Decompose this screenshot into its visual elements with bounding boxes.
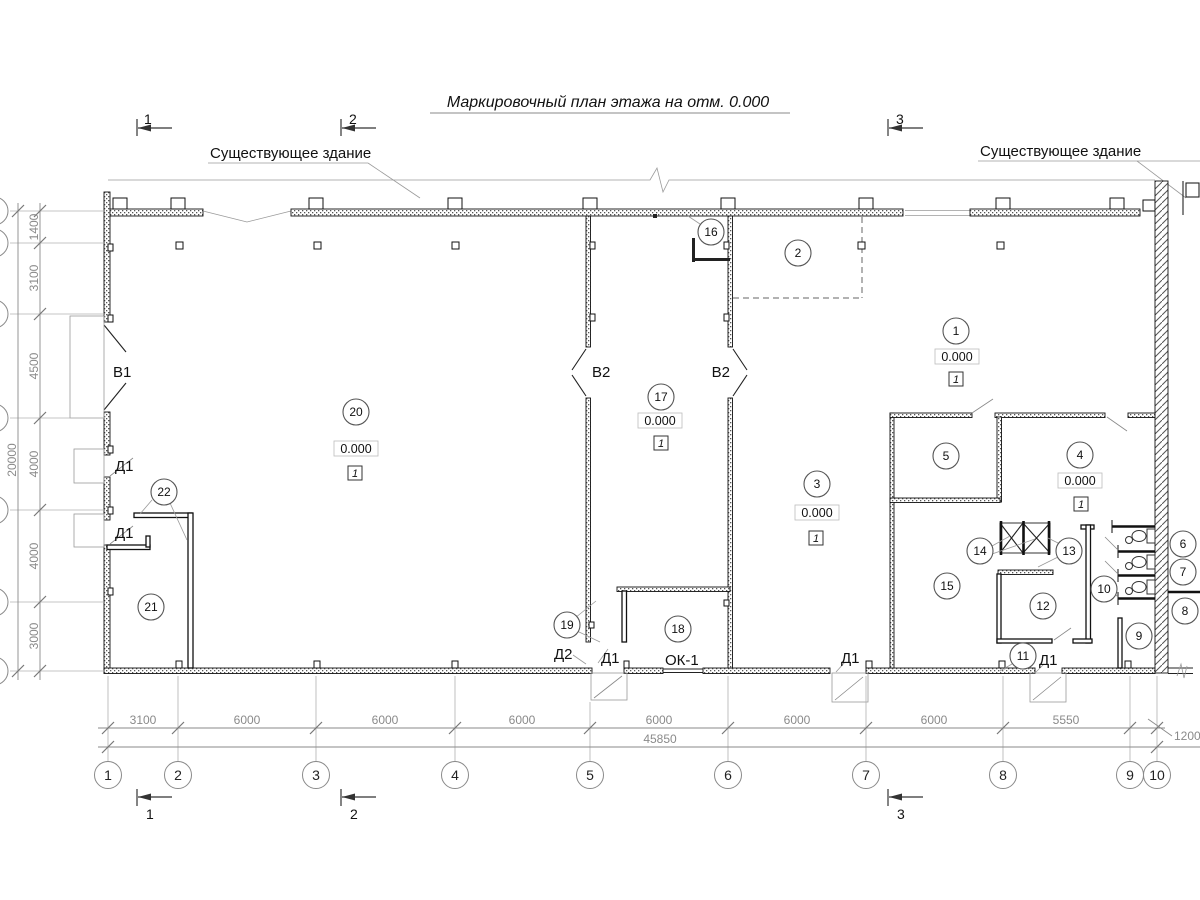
axis-bubble: 6 (715, 762, 742, 789)
toilet-icon (1126, 529, 1156, 544)
svg-text:0.000: 0.000 (340, 442, 371, 456)
dim-1-2: 3100 (130, 713, 157, 727)
room-badge: 12 (1030, 593, 1056, 619)
existing-building-outline (108, 168, 1155, 192)
gate-v2-left-symbol (572, 349, 586, 396)
svg-text:8: 8 (1182, 604, 1189, 618)
svg-text:4: 4 (451, 767, 459, 783)
svg-text:18: 18 (671, 622, 685, 636)
dim-8-9: 5550 (1053, 713, 1080, 727)
svg-text:3: 3 (814, 477, 821, 491)
axis-bubble: 9 (1117, 762, 1144, 789)
floor-plan-drawing: Маркировочный план этажа на отм. 0.000 С… (0, 0, 1200, 900)
axis-bubble: 10 (1144, 762, 1171, 789)
svg-text:1: 1 (813, 533, 819, 545)
room-badge: 15 (934, 573, 960, 599)
door-label-d1: Д1 (601, 650, 620, 667)
svg-text:9: 9 (1126, 767, 1134, 783)
svg-text:3: 3 (312, 767, 320, 783)
svg-text:9: 9 (1136, 629, 1143, 643)
dim-3-4: 6000 (372, 713, 399, 727)
svg-text:12: 12 (1036, 599, 1050, 613)
door-label-d1: Д1 (1039, 652, 1058, 669)
section-number: 3 (896, 111, 904, 127)
gate-label-v1: В1 (113, 364, 131, 381)
room-badge: 16 (698, 219, 724, 245)
room-badge: 2 (785, 240, 811, 266)
door-label-d1: Д1 (115, 525, 134, 542)
section-marker-3-bottom: 3 (888, 789, 923, 822)
existing-building-wall-right (1155, 181, 1199, 673)
svg-text:10: 10 (1149, 767, 1165, 783)
existing-building-label: Существующее здание (980, 143, 1141, 160)
svg-text:17: 17 (654, 390, 668, 404)
room-badge: 21 (138, 594, 164, 620)
svg-text:21: 21 (144, 600, 158, 614)
axis-bubble: 1 (95, 762, 122, 789)
svg-text:22: 22 (157, 485, 171, 499)
existing-building-label: Существующее здание (210, 145, 371, 162)
door-label-d1: Д1 (841, 650, 860, 667)
opening-labels: В1 В2 В2 Д1 Д1 Д2 Д1 ОК-1 Д1 Д1 (113, 364, 1058, 669)
svg-text:0.000: 0.000 (1064, 474, 1095, 488)
svg-text:1: 1 (352, 468, 358, 480)
dim-left-1: 1400 (27, 213, 41, 240)
section-number: 1 (146, 806, 154, 822)
room-badge: 9 (1126, 623, 1152, 649)
axis-bubble: 8 (990, 762, 1017, 789)
svg-text:14: 14 (973, 544, 987, 558)
section-marker-2-top: 2 (341, 111, 376, 136)
section-number: 1 (144, 111, 152, 127)
svg-text:11: 11 (1017, 649, 1030, 663)
svg-text:10: 10 (1097, 582, 1111, 596)
axis-bubble: 5 (577, 762, 604, 789)
section-marker-1-bottom: 1 (137, 789, 172, 822)
dim-left-3: 4500 (27, 352, 41, 379)
toilet-icon (1126, 580, 1156, 595)
svg-text:15: 15 (940, 579, 954, 593)
room-badge: 4 (1067, 442, 1093, 468)
axis-bubble: 3 (303, 762, 330, 789)
dimension-ticks (102, 722, 1163, 753)
svg-text:5: 5 (586, 767, 594, 783)
svg-text:16: 16 (704, 225, 718, 239)
gate-v2-right-symbol (733, 349, 747, 396)
svg-text:0.000: 0.000 (941, 350, 972, 364)
room-badge: 5 (933, 443, 959, 469)
door-label-d2: Д2 (554, 646, 573, 663)
svg-text:2: 2 (795, 246, 802, 260)
room-badge: 22 (151, 479, 177, 505)
entrance-porches (591, 673, 1066, 702)
section-number: 3 (897, 806, 905, 822)
room-badge: 11 (1010, 643, 1036, 669)
left-dimensions: 1400 3100 4500 4000 4000 3000 20000 (0, 197, 104, 685)
elevation-mark: 0.000 1 (795, 505, 839, 545)
room-badge: 20 (343, 399, 369, 425)
room-badge: 13 (1056, 538, 1082, 564)
svg-text:1: 1 (953, 374, 959, 386)
axis-bubble: 4 (442, 762, 469, 789)
svg-text:0.000: 0.000 (644, 414, 675, 428)
drawing-title: Маркировочный план этажа на отм. 0.000 (447, 94, 769, 111)
dim-total-height: 20000 (5, 443, 19, 477)
bottom-dimensions: 3100 6000 6000 6000 6000 6000 6000 5550 … (98, 676, 1200, 762)
section-number: 2 (350, 806, 358, 822)
window-ok1 (663, 669, 703, 673)
door-swings (74, 399, 1127, 640)
room-badge: 18 (665, 616, 691, 642)
svg-text:6: 6 (1180, 537, 1187, 551)
floor-plan-page: Маркировочный план этажа на отм. 0.000 С… (0, 0, 1200, 900)
elevation-mark: 0.000 1 (334, 441, 378, 480)
svg-text:0.000: 0.000 (801, 506, 832, 520)
svg-text:8: 8 (999, 767, 1007, 783)
room-badge: 14 (967, 538, 993, 564)
section-number: 2 (349, 111, 357, 127)
interior-walls (586, 216, 1155, 668)
section-marker-3-top: 3 (888, 111, 923, 136)
axis-bubbles-bottom: 1 2 3 4 5 6 7 8 9 10 (95, 762, 1171, 789)
axis-bubbles-left (0, 197, 8, 685)
svg-text:19: 19 (560, 618, 574, 632)
room-badge: 1 (943, 318, 969, 344)
dim-5-6: 6000 (646, 713, 673, 727)
window-label-ok1: ОК-1 (665, 652, 699, 669)
dim-left-6: 3000 (27, 622, 41, 649)
svg-text:1: 1 (1078, 499, 1084, 511)
gate-label-v2: В2 (712, 364, 730, 381)
svg-text:1: 1 (104, 767, 112, 783)
dim-4-5: 6000 (509, 713, 536, 727)
gate-label-v2: В2 (592, 364, 610, 381)
svg-text:13: 13 (1062, 544, 1076, 558)
toilet-fixtures (1126, 529, 1156, 595)
svg-text:20: 20 (349, 405, 363, 419)
elevation-mark: 0.000 1 (1058, 473, 1102, 511)
room-badge: 19 (554, 612, 580, 638)
room-badge: 17 (648, 384, 674, 410)
room-badge: 6 (1170, 531, 1196, 557)
svg-text:4: 4 (1077, 448, 1084, 462)
svg-text:6: 6 (724, 767, 732, 783)
existing-building-annotation-left: Существующее здание (208, 145, 420, 198)
toilet-icon (1126, 555, 1156, 570)
svg-text:2: 2 (174, 767, 182, 783)
door-label-d1: Д1 (115, 458, 134, 475)
dim-2-3: 6000 (234, 713, 261, 727)
dim-7-8: 6000 (921, 713, 948, 727)
axis-bubble: 2 (165, 762, 192, 789)
dim-left-2: 3100 (27, 264, 41, 291)
dim-left-5: 4000 (27, 542, 41, 569)
axis-bubble: 7 (853, 762, 880, 789)
room-badge: 7 (1170, 559, 1196, 585)
dim-total-width: 45850 (643, 732, 677, 746)
section-marker-1-top: 1 (137, 111, 172, 136)
dim-6-7: 6000 (784, 713, 811, 727)
svg-text:1: 1 (953, 324, 960, 338)
svg-text:1: 1 (658, 438, 664, 450)
room-badge: 3 (804, 471, 830, 497)
dim-9-10-offset: 1200 (1174, 729, 1200, 743)
section-marker-2-bottom: 2 (341, 789, 376, 822)
svg-text:7: 7 (862, 767, 870, 783)
elevation-mark: 0.000 1 (638, 413, 682, 450)
columns (108, 198, 1131, 668)
dim-left-4: 4000 (27, 450, 41, 477)
room-leaders (140, 216, 1060, 672)
room-badge: 10 (1091, 576, 1117, 602)
svg-text:5: 5 (943, 449, 950, 463)
svg-text:7: 7 (1180, 565, 1187, 579)
room-badge: 8 (1172, 598, 1198, 624)
elevation-mark: 0.000 1 (935, 349, 979, 386)
